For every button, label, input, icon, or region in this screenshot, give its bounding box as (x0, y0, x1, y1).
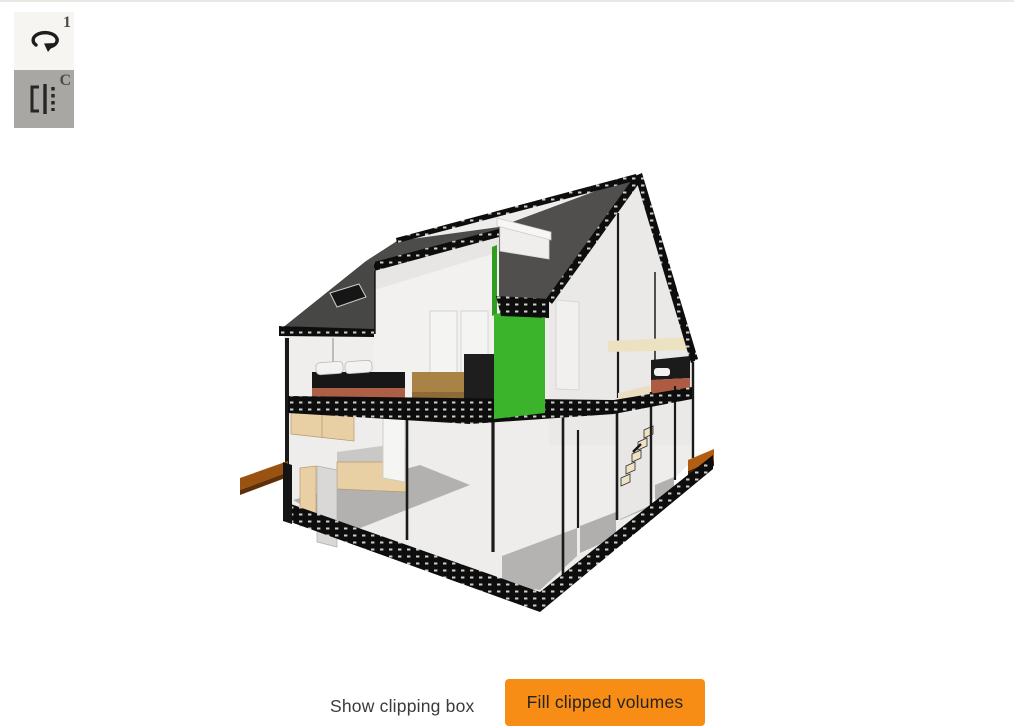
house-cutaway-render (0, 0, 1014, 727)
left-bed-pillow-2 (345, 360, 373, 374)
upper-door-3 (556, 300, 579, 390)
left-bed-pillow-1 (316, 361, 344, 375)
deck-post (283, 462, 292, 524)
rotate-view-button[interactable]: 1 (14, 12, 74, 70)
right-bed-pillow (654, 368, 670, 376)
fill-clipped-volumes-button[interactable]: Fill clipped volumes (505, 679, 705, 726)
dark-sofa (464, 354, 497, 399)
clipping-view-button[interactable]: C (14, 70, 74, 128)
rotate-view-label: 1 (63, 13, 71, 32)
app-window: 1 C Show clipping box Fill clipped volum… (0, 0, 1014, 727)
clipping-view-label: C (59, 71, 71, 90)
show-clipping-box-button[interactable]: Show clipping box (322, 688, 482, 724)
right-bed-frame (651, 356, 690, 380)
house-3d-viewport[interactable] (0, 0, 1014, 727)
roof-eave-fascia (496, 296, 549, 318)
ground-floor-door (383, 414, 405, 482)
green-wall-edge (492, 245, 497, 316)
green-highlight-wall (494, 308, 545, 419)
rotate-camera-icon (22, 21, 66, 61)
